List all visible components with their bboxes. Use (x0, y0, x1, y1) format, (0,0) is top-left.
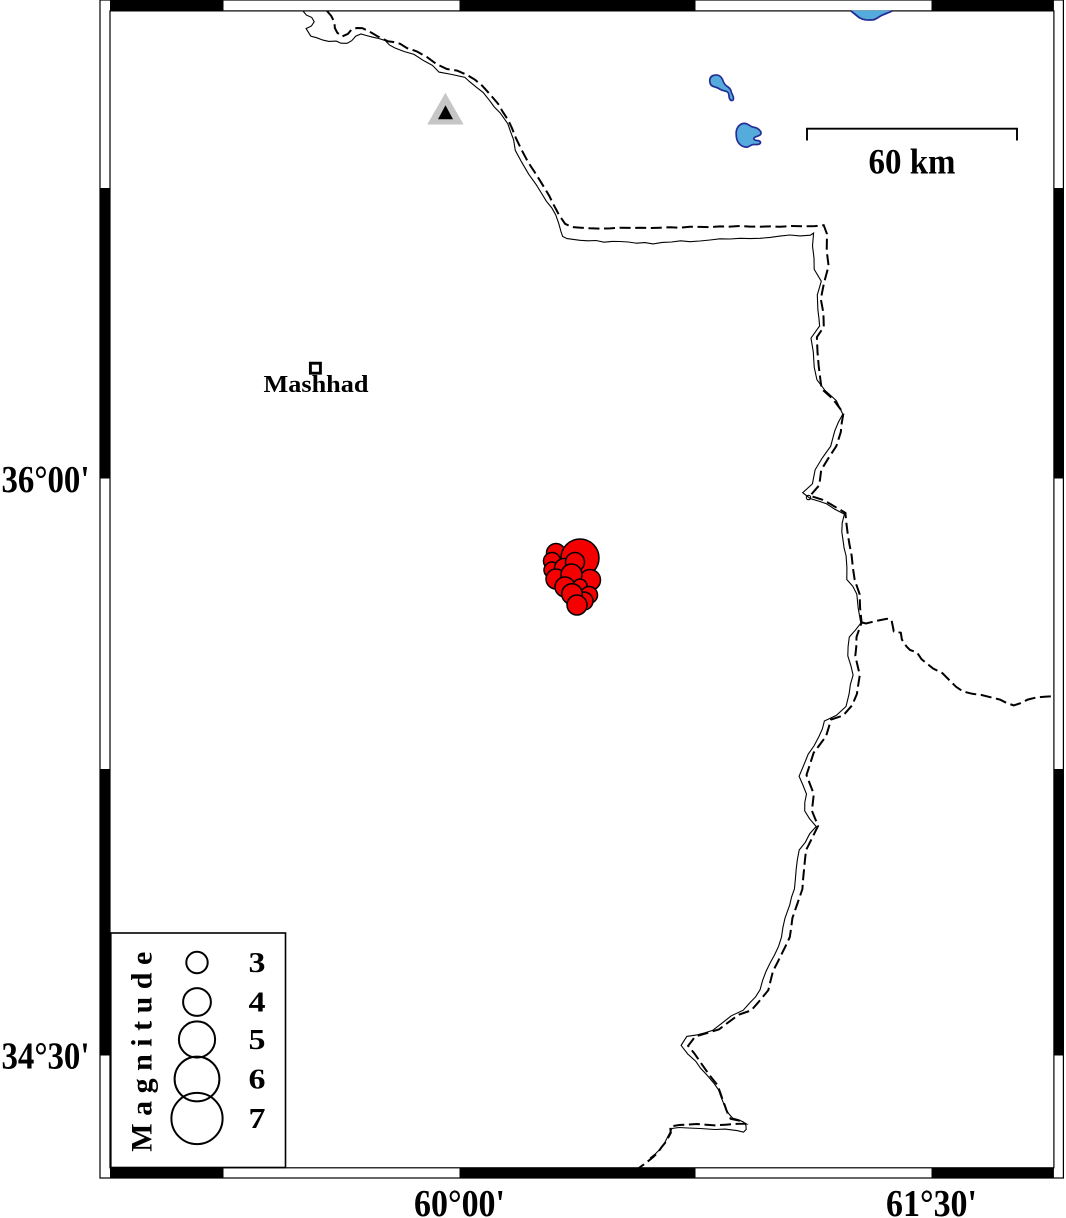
svg-text:61°30': 61°30' (886, 1183, 977, 1218)
svg-text:6: 6 (249, 1064, 266, 1096)
svg-text:34°30': 34°30' (2, 1036, 90, 1078)
svg-text:Mashhad: Mashhad (264, 372, 370, 398)
svg-text:3: 3 (249, 947, 266, 979)
svg-text:5: 5 (249, 1024, 266, 1056)
svg-text:60°00': 60°00' (414, 1183, 505, 1218)
svg-text:4: 4 (249, 987, 266, 1019)
svg-text:60 km: 60 km (869, 142, 956, 182)
svg-text:Magnitude: Magnitude (126, 944, 159, 1152)
svg-text:36°00': 36°00' (2, 459, 90, 501)
svg-text:7: 7 (249, 1103, 266, 1135)
